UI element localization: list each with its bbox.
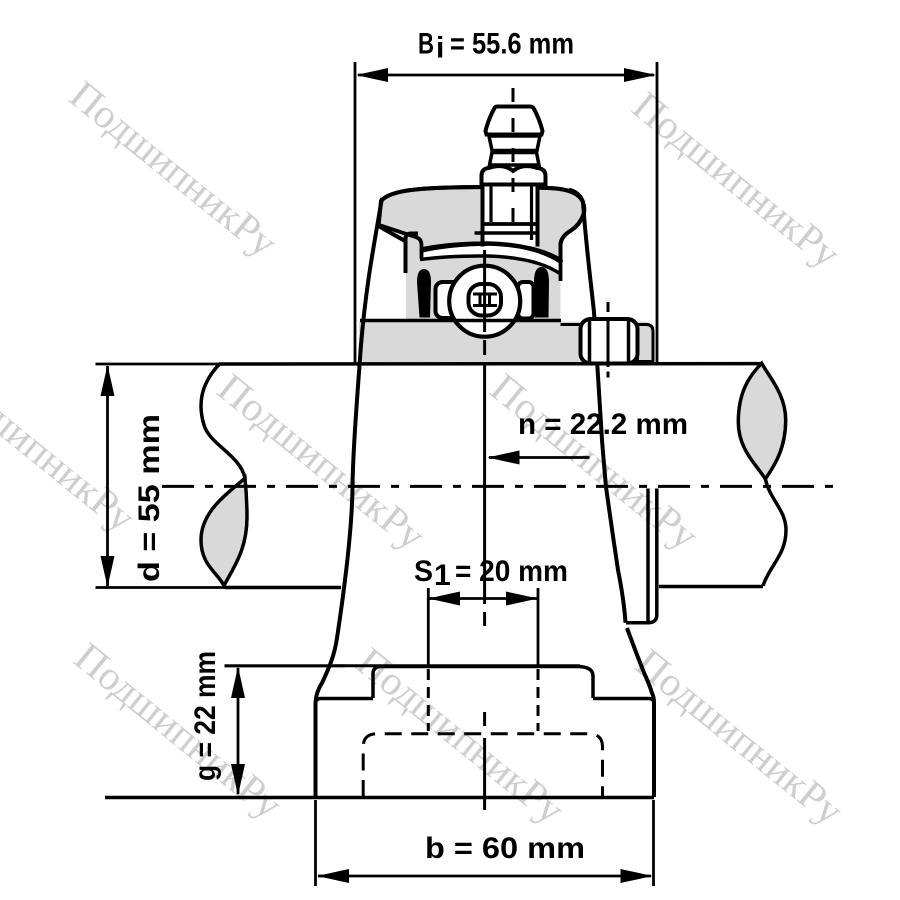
svg-text:B: B [418, 28, 434, 61]
svg-text:g = 22 mm: g = 22 mm [189, 651, 222, 781]
svg-text:S: S [414, 555, 433, 588]
svg-text:i: i [436, 32, 444, 65]
svg-text:d = 55 mm: d = 55 mm [133, 414, 166, 582]
svg-text:1: 1 [434, 559, 451, 592]
svg-text:b = 60 mm: b = 60 mm [425, 832, 585, 865]
svg-text:= 55.6 mm: = 55.6 mm [450, 28, 574, 61]
svg-text:n = 22.2 mm: n = 22.2 mm [518, 408, 688, 441]
svg-text:= 20 mm: = 20 mm [455, 555, 568, 588]
